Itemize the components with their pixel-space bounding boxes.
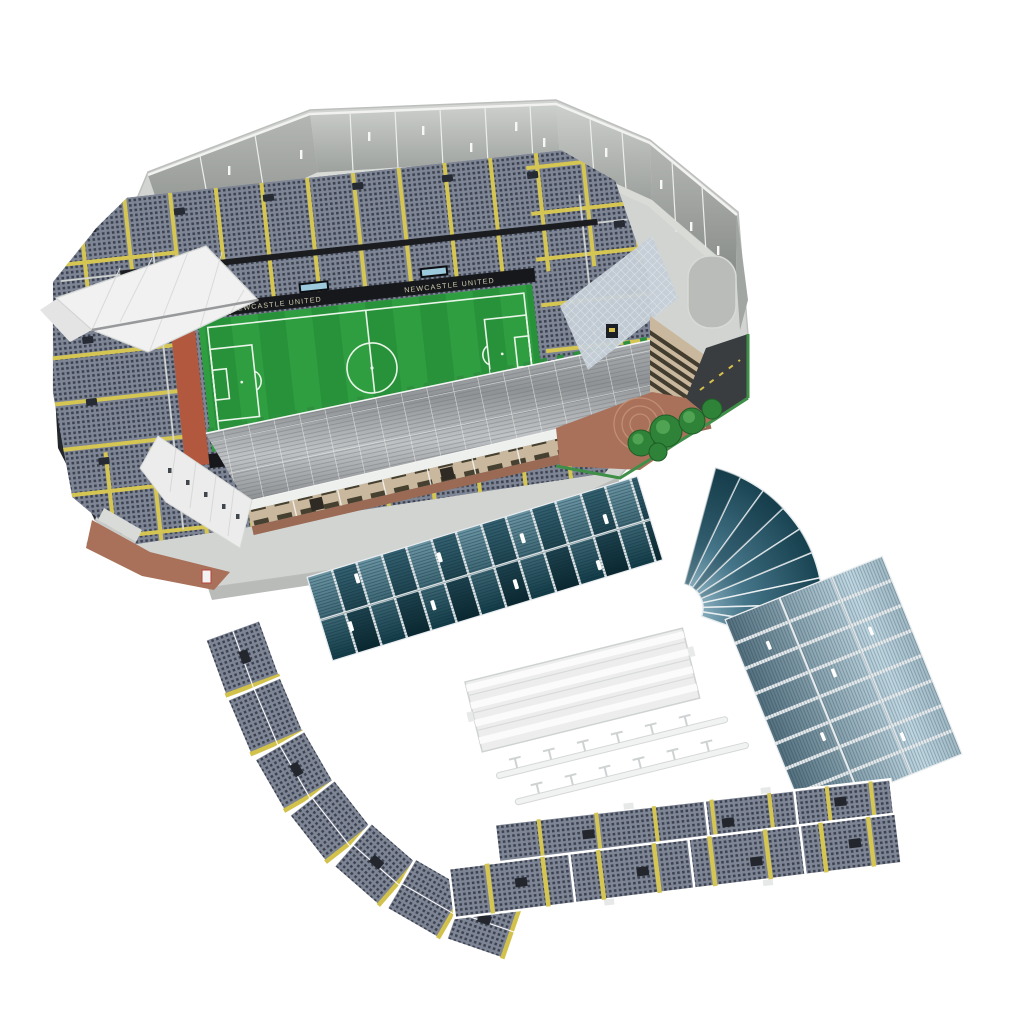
crest-badge-detail [609, 328, 615, 332]
product-photo: NEWCASTLE UNITED NEWCASTLE UNITED [0, 0, 1024, 1024]
stadium-puzzle-scene: NEWCASTLE UNITED NEWCASTLE UNITED [0, 0, 1024, 1024]
corner-tower [688, 256, 736, 328]
piece-roof-truss-frame [459, 620, 749, 812]
ticket-hut [202, 570, 211, 583]
